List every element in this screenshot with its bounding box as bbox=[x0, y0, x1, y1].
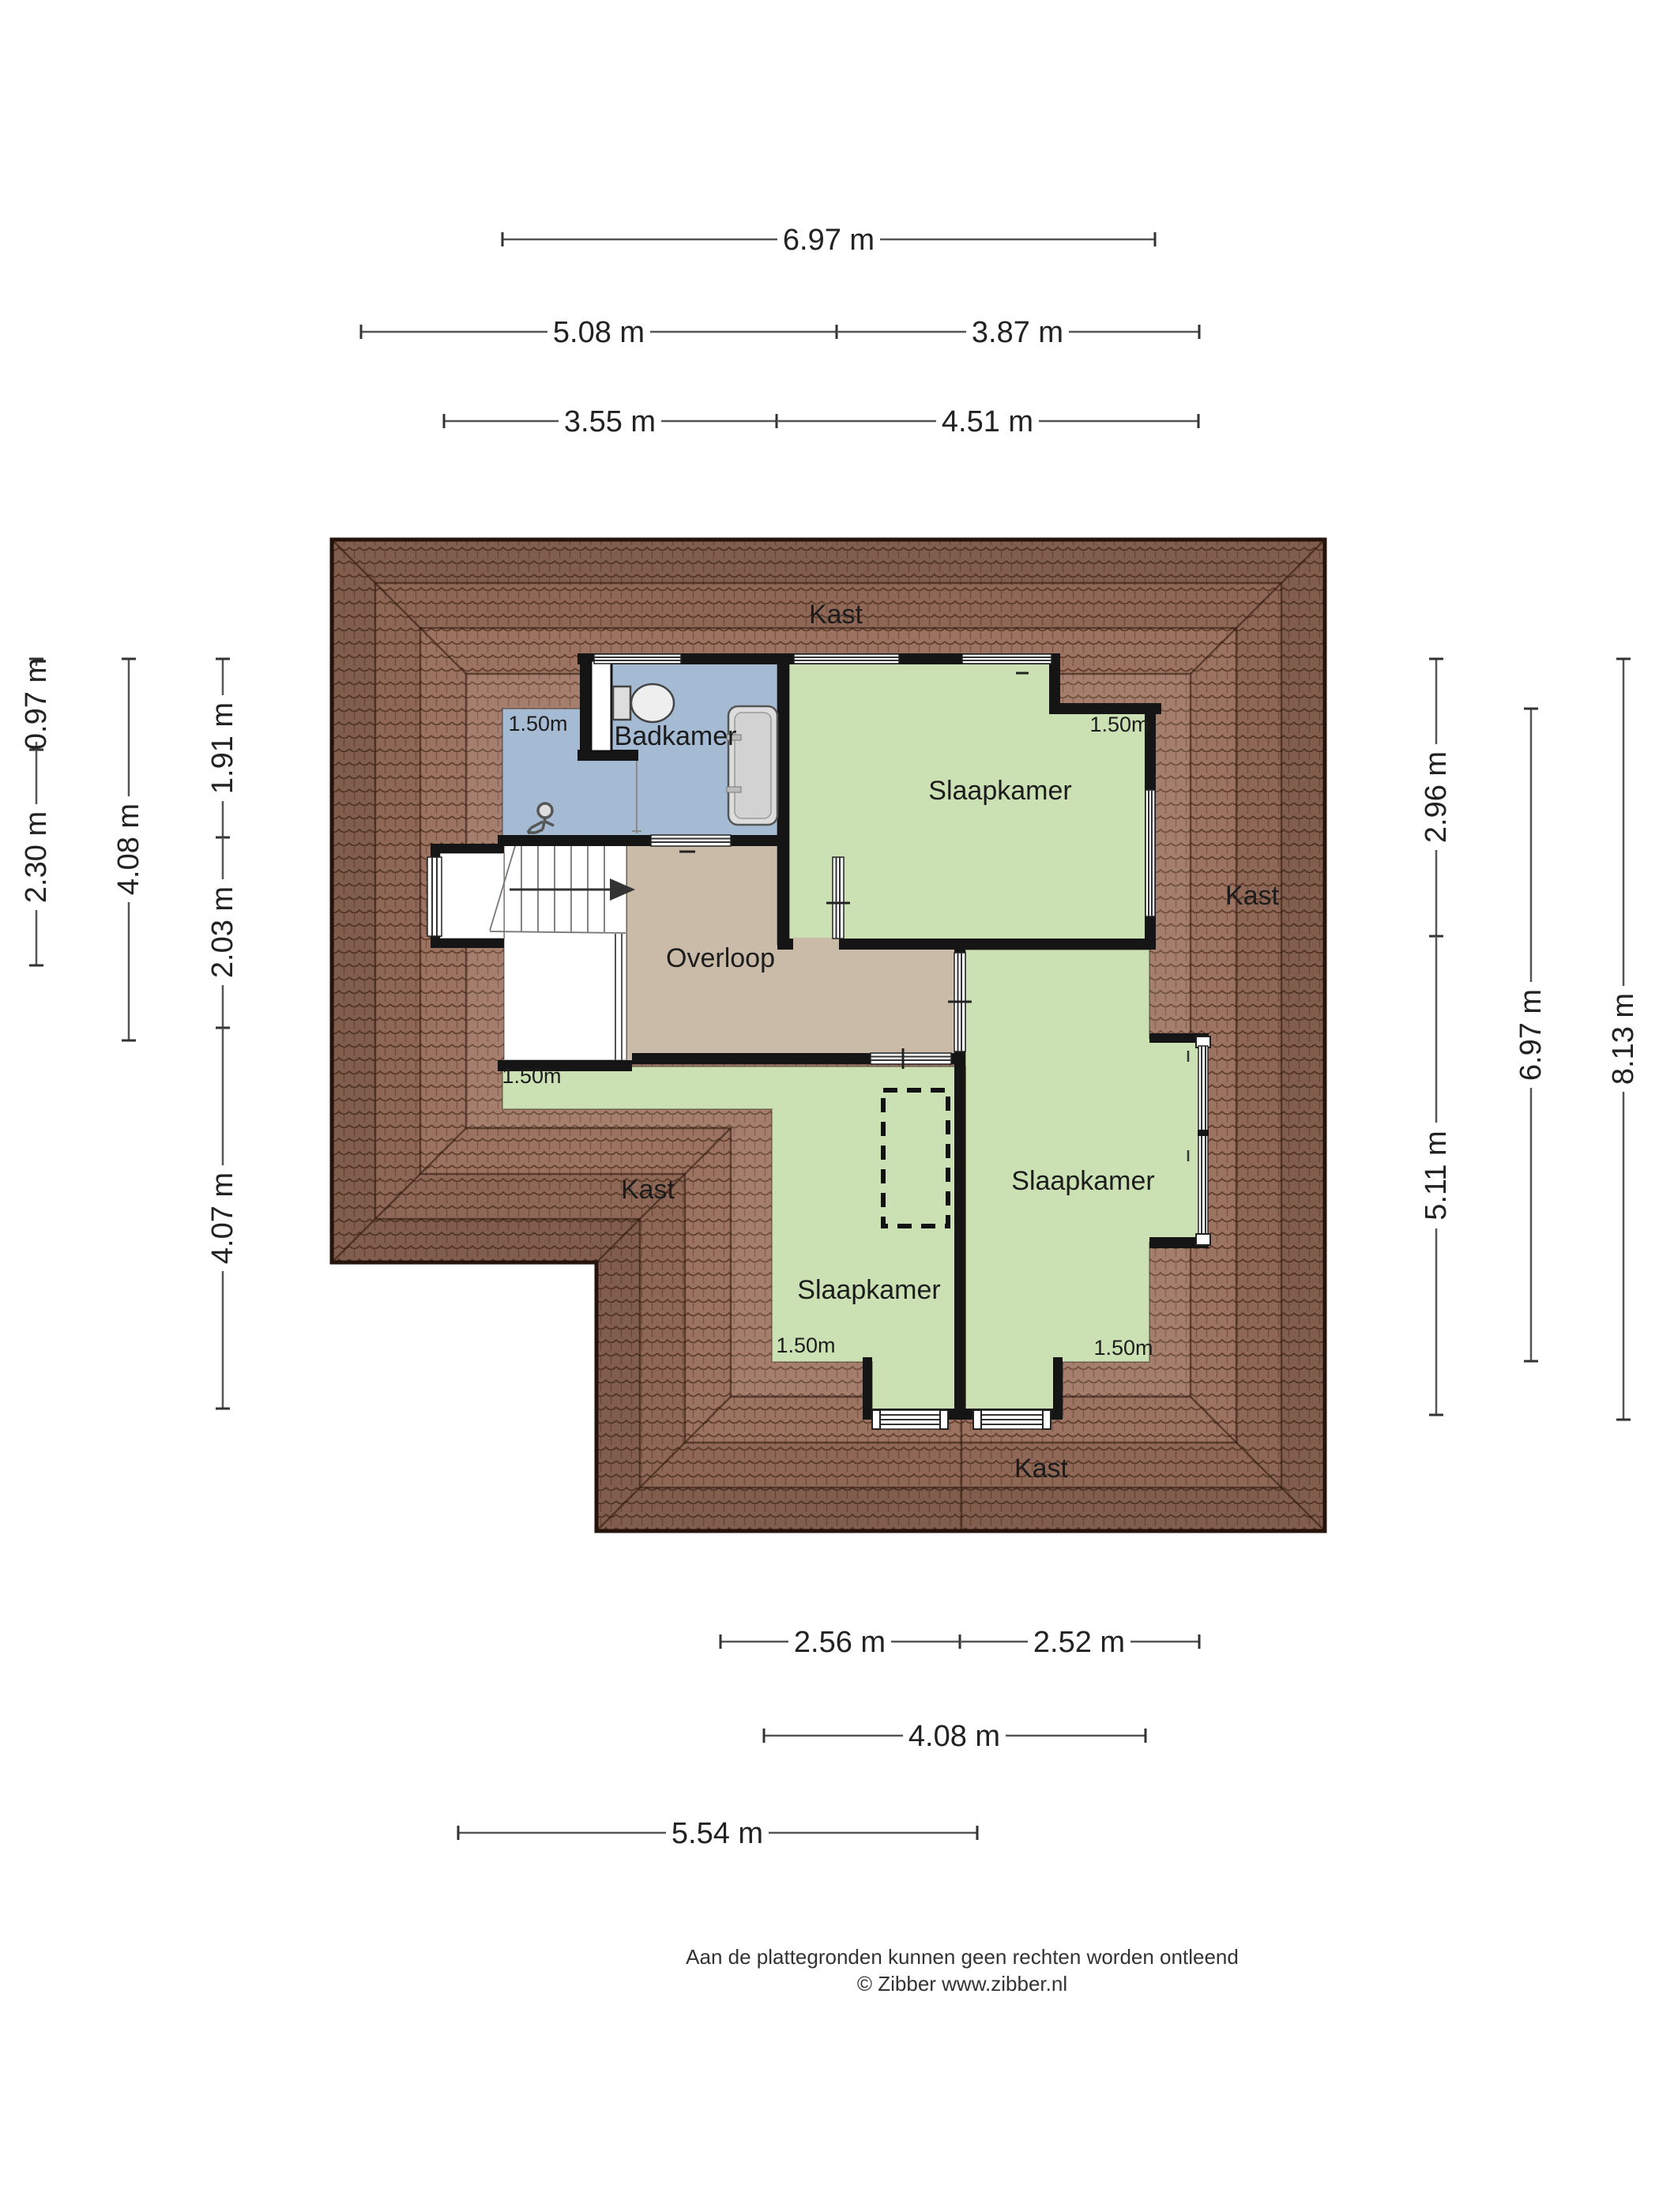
dim-label: 4.51 m bbox=[942, 405, 1033, 438]
dim-left-b: 2.30 m bbox=[20, 750, 53, 965]
dim-label: 8.13 m bbox=[1607, 993, 1640, 1085]
bedrooms-divider-wall bbox=[954, 1053, 965, 1420]
bathroom-bedroom-divider-wall bbox=[777, 653, 789, 950]
dim-label: 2.03 m bbox=[206, 886, 239, 978]
window-middle-bay bbox=[872, 1410, 948, 1429]
dim-bottom-a: 2.56 m bbox=[720, 1626, 960, 1659]
dim-right-b: 5.11 m bbox=[1420, 936, 1453, 1415]
dim-left-c: 4.08 m bbox=[112, 659, 145, 1040]
dim-label: 5.11 m bbox=[1420, 1130, 1453, 1220]
window-bedroom-top-right-wall bbox=[1145, 790, 1155, 916]
bathroom-left-wall bbox=[580, 653, 591, 761]
storage-bottom-label: Kast bbox=[1014, 1454, 1069, 1484]
toilet-icon bbox=[613, 684, 674, 722]
dim-label: 4.08 m bbox=[112, 803, 145, 895]
dim-label: 3.55 m bbox=[564, 405, 656, 438]
footer-disclaimer: Aan de plattegronden kunnen geen rechten… bbox=[686, 1945, 1239, 1969]
dim-left-e: 2.03 m bbox=[206, 837, 239, 1028]
floorplan-canvas: Badkamer Overloop Slaapkamer Slaapkamer … bbox=[0, 0, 1659, 2212]
dim-top-total: 6.97 m bbox=[502, 224, 1155, 257]
height-marker-bedroom-top: 1.50m bbox=[1089, 713, 1149, 736]
dim-label: 2.30 m bbox=[20, 811, 53, 903]
window-stair-gable bbox=[427, 857, 442, 936]
dim-label: 5.54 m bbox=[671, 1817, 763, 1850]
dim-label: 5.08 m bbox=[553, 316, 645, 349]
dim-bottom-c: 4.08 m bbox=[764, 1720, 1145, 1753]
footer-credit: © Zibber www.zibber.nl bbox=[857, 1972, 1067, 1996]
dim-bottom-b: 2.52 m bbox=[960, 1626, 1199, 1659]
bedroom-top-bottom-wall bbox=[789, 939, 1148, 950]
storage-top-label: Kast bbox=[809, 600, 863, 630]
stairwell-floor bbox=[504, 841, 626, 1060]
dim-left-f: 4.07 m bbox=[206, 1028, 239, 1409]
bedroom-top-label: Slaapkamer bbox=[928, 776, 1071, 806]
dim-label: 1.91 m bbox=[206, 702, 239, 794]
landing-label: Overloop bbox=[666, 943, 775, 973]
height-marker-bedroom-middle-left: 1.50m bbox=[502, 1064, 561, 1088]
dim-label: 0.97 m bbox=[20, 658, 53, 750]
stair-gable-bottom-wall bbox=[431, 939, 504, 948]
floorplan-page: Badkamer Overloop Slaapkamer Slaapkamer … bbox=[0, 0, 1659, 2212]
storage-left-label: Kast bbox=[621, 1175, 675, 1205]
dim-top-row3-left: 3.55 m bbox=[444, 405, 777, 438]
footer: Aan de plattegronden kunnen geen rechten… bbox=[686, 1945, 1239, 1996]
dim-label: 2.56 m bbox=[794, 1626, 886, 1659]
dim-label: 6.97 m bbox=[783, 224, 875, 257]
dim-label: 2.96 m bbox=[1420, 751, 1453, 843]
dim-top-row3-right: 4.51 m bbox=[777, 405, 1198, 438]
dim-label: 3.87 m bbox=[972, 316, 1063, 349]
dim-label: 2.52 m bbox=[1033, 1626, 1125, 1659]
dim-label: 4.07 m bbox=[206, 1172, 239, 1264]
stair-gable-top-wall bbox=[431, 844, 504, 853]
bathroom-label: Badkamer bbox=[615, 721, 737, 751]
bathroom-bottom-wall bbox=[498, 835, 783, 846]
dim-right-a: 2.96 m bbox=[1420, 659, 1453, 936]
dim-left-a: 0.97 m bbox=[20, 658, 53, 750]
dim-label: 4.08 m bbox=[908, 1720, 1000, 1753]
height-marker-bedroom-middle: 1.50m bbox=[776, 1334, 835, 1357]
dim-label: 6.97 m bbox=[1514, 989, 1548, 1081]
height-marker-bedroom-right: 1.50m bbox=[1093, 1336, 1153, 1360]
stair-gable-floor bbox=[440, 853, 504, 939]
bedroom-right-label: Slaapkamer bbox=[1011, 1166, 1154, 1196]
storage-right-label: Kast bbox=[1225, 881, 1280, 911]
window-right-bay bbox=[973, 1410, 1051, 1429]
window-top-bathroom bbox=[594, 654, 681, 664]
window-top-bedroom-left bbox=[794, 654, 899, 664]
dim-top-row2-right: 3.87 m bbox=[837, 316, 1199, 349]
dim-left-d: 1.91 m bbox=[206, 659, 239, 837]
dim-right-d: 8.13 m bbox=[1607, 659, 1640, 1420]
bedroom-middle-label: Slaapkamer bbox=[797, 1275, 940, 1305]
dim-bottom-d: 5.54 m bbox=[458, 1817, 977, 1850]
bathroom-partition-pillar bbox=[591, 660, 611, 751]
height-marker-bathroom: 1.50m bbox=[508, 712, 567, 735]
dim-right-c: 6.97 m bbox=[1514, 709, 1548, 1361]
window-top-bedroom-right bbox=[962, 654, 1051, 664]
dim-top-row2-left: 5.08 m bbox=[361, 316, 837, 349]
